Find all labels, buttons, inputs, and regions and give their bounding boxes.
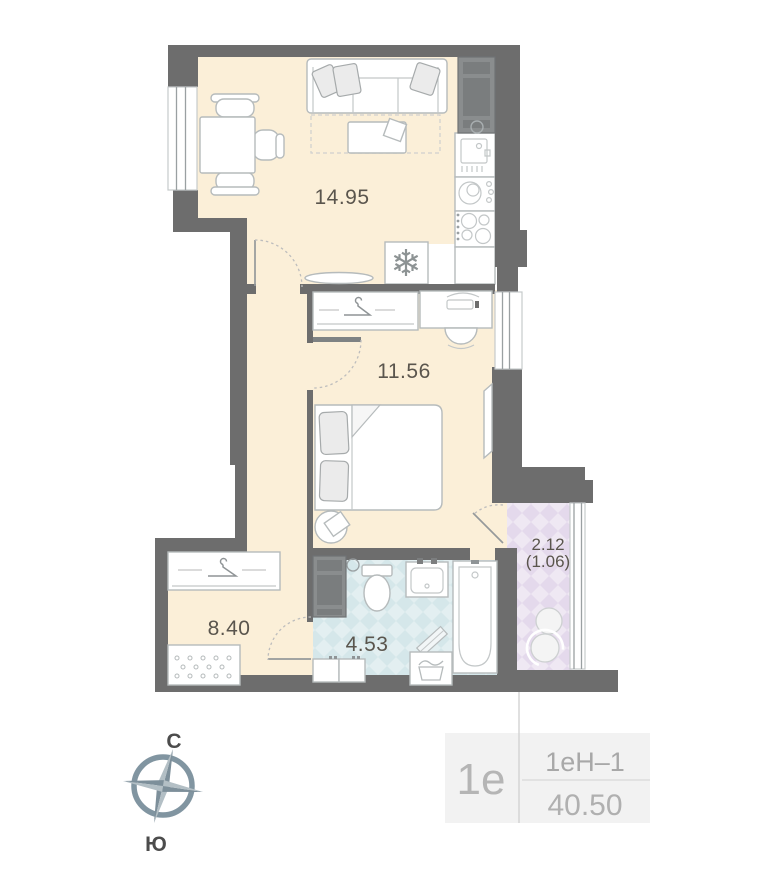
balcony-area-coefficient-label: (1.06): [526, 552, 570, 571]
wall-segment: [230, 218, 247, 465]
kitchen-area-label: 14.95: [314, 186, 369, 209]
hallway-area-label: 8.40: [208, 617, 251, 640]
wall-segment: [585, 480, 593, 503]
radiator: [484, 384, 492, 458]
wall-segment: [235, 465, 247, 538]
dining-chair-seat: [216, 99, 254, 117]
wall-segment: [155, 538, 168, 692]
washing-machine: [313, 656, 365, 682]
wall-segment: [497, 670, 618, 692]
sofa-pillow: [333, 63, 362, 97]
laundry-basket: [410, 652, 452, 685]
bathtub: [453, 560, 497, 673]
bedroom-window: [495, 292, 522, 369]
toilet: [362, 565, 392, 611]
tall-cabinet: [458, 57, 495, 133]
bed-pillow: [319, 411, 349, 454]
balcony-glazing: [570, 503, 585, 669]
wall-segment: [492, 367, 522, 467]
bedroom-area-label: 11.56: [377, 360, 431, 383]
shoe-cabinet: [168, 645, 240, 685]
bed-pillow: [319, 461, 348, 502]
kitchen-counter: [455, 247, 495, 284]
desk: [420, 291, 492, 328]
dining-chair: [276, 134, 284, 158]
dining-table: [200, 117, 255, 173]
wall-segment: [495, 45, 520, 267]
dining-chair: [211, 187, 259, 195]
balcony-chair: [531, 634, 559, 662]
floor-plan-page: ❄: [0, 0, 760, 890]
unit-type-code: 1еН–1: [545, 747, 625, 777]
desk-item: [475, 301, 479, 308]
wall-segment: [168, 45, 198, 87]
kitchen-window: [168, 87, 197, 190]
wall-segment: [155, 538, 247, 552]
compass-south-label: Ю: [145, 833, 167, 856]
floor-plan-drawing: ❄: [0, 0, 760, 890]
wall-segment: [307, 290, 313, 343]
wall-segment: [495, 548, 517, 670]
wall-segment: [520, 230, 527, 267]
layout-code: 1е: [457, 755, 506, 804]
bathroom-area-label: 4.53: [346, 633, 389, 656]
dining-chair-seat: [253, 130, 279, 160]
wall-segment: [307, 390, 313, 622]
bed: [315, 405, 442, 510]
tv: [305, 273, 373, 284]
compass-north-label: С: [166, 730, 181, 753]
wall-segment: [168, 45, 520, 57]
hall-wardrobe: [168, 552, 280, 590]
snowflake-icon: ❄: [390, 242, 421, 285]
sofa: [307, 59, 447, 113]
wardrobe: [313, 292, 418, 330]
wall-segment: [492, 467, 585, 503]
total-area-value: 40.50: [547, 789, 622, 822]
bathroom-sink: [406, 558, 448, 597]
compass: С Ю: [123, 730, 203, 856]
unit-info-block: 1е 1еН–1 40.50: [445, 692, 650, 823]
corridor-floor: [247, 284, 313, 552]
wall-segment: [497, 267, 518, 292]
